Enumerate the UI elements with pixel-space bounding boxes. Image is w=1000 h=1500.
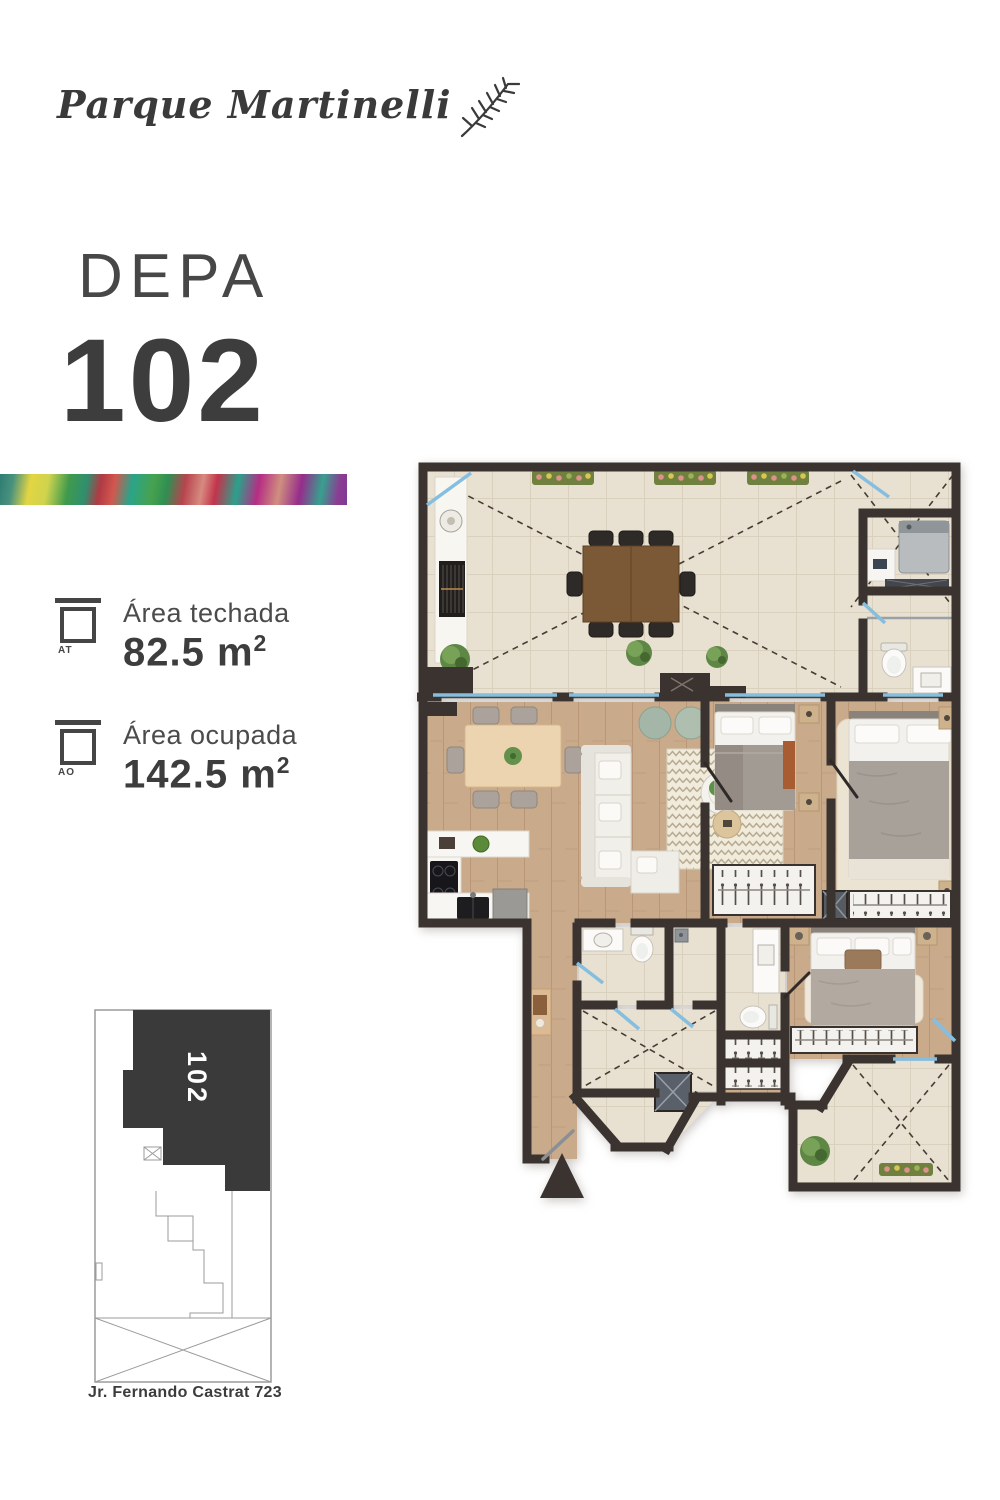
brand-logo: Parque Martinelli xyxy=(57,82,520,140)
covered-area-row: AT Área techada 82.5 m2 xyxy=(55,598,290,675)
occupied-area-name: Área ocupada xyxy=(123,720,297,751)
street-label: Jr. Fernando Castrat 723 xyxy=(70,1384,300,1402)
covered-area-icon: AT xyxy=(55,598,103,656)
branch-leaf-icon xyxy=(458,76,520,140)
decorative-paint-stripe xyxy=(0,474,347,505)
terrace-dining-table xyxy=(567,531,695,637)
occupied-area-icon: AO xyxy=(55,720,103,778)
unit-number: 102 xyxy=(60,322,266,440)
bedroom-3-closet xyxy=(791,1027,917,1053)
master-closet xyxy=(849,891,951,919)
terrace-planters xyxy=(532,470,809,485)
site-plan: 102 xyxy=(94,1009,272,1383)
elevator-shaft xyxy=(655,1073,691,1111)
floor-plan xyxy=(417,461,962,1203)
covered-area-name: Área techada xyxy=(123,598,290,629)
floorplan-poster: Parque Martinelli DEPA 102 AT Área techa… xyxy=(0,0,1000,1500)
occupied-area-value: 142.5 m2 xyxy=(123,752,297,797)
pouf xyxy=(639,707,671,739)
covered-area-icon-label: AT xyxy=(58,645,103,656)
covered-area-value: 82.5 m2 xyxy=(123,630,290,675)
brand-name: Parque Martinelli xyxy=(57,82,452,127)
occupied-area-row: AO Área ocupada 142.5 m2 xyxy=(55,720,297,797)
master-bedroom xyxy=(823,707,955,919)
bedroom-1-closet xyxy=(713,865,815,915)
bedroom-3 xyxy=(789,925,937,1053)
bbq-counter xyxy=(435,477,467,663)
unit-type-label: DEPA xyxy=(78,246,270,308)
shower-room xyxy=(675,929,688,942)
occupied-area-icon-label: AO xyxy=(58,767,103,778)
hall-console-table xyxy=(529,989,551,1035)
site-unit-number: 102 xyxy=(182,1051,212,1105)
